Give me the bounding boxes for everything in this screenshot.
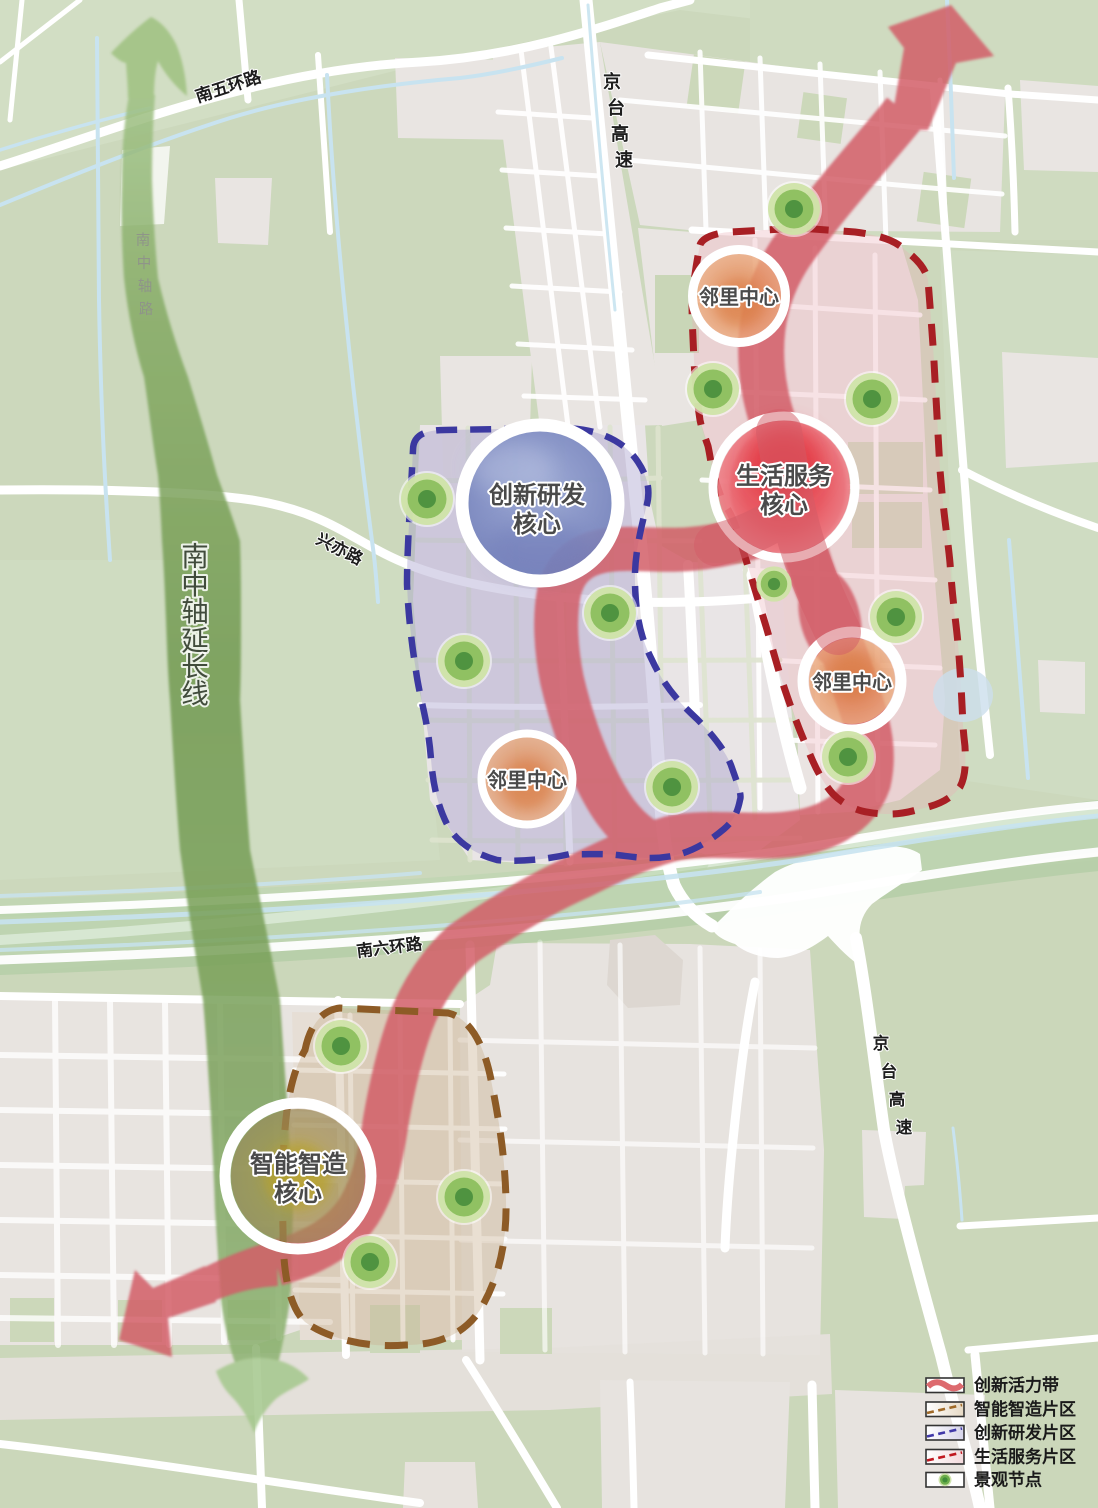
svg-text:核心: 核心 <box>274 1179 322 1207</box>
svg-text:南: 南 <box>181 541 209 572</box>
svg-text:台: 台 <box>881 1061 898 1081</box>
svg-text:智能智造: 智能智造 <box>250 1150 346 1178</box>
svg-text:京: 京 <box>873 1033 890 1053</box>
svg-text:线: 线 <box>181 678 209 709</box>
svg-text:中: 中 <box>137 255 152 272</box>
svg-text:速: 速 <box>615 149 633 170</box>
svg-text:核心: 核心 <box>513 510 561 538</box>
svg-text:邻里中心: 邻里中心 <box>812 670 892 694</box>
svg-text:智能智造片区: 智能智造片区 <box>974 1399 1076 1419</box>
svg-text:路: 路 <box>139 301 154 318</box>
svg-text:高: 高 <box>611 123 629 144</box>
svg-text:京: 京 <box>603 71 621 92</box>
svg-text:轴: 轴 <box>138 278 153 295</box>
svg-text:邻里中心: 邻里中心 <box>699 285 779 309</box>
svg-text:轴: 轴 <box>181 596 209 627</box>
svg-text:台: 台 <box>607 97 625 118</box>
svg-text:生活服务片区: 生活服务片区 <box>974 1447 1076 1467</box>
svg-text:高: 高 <box>889 1089 906 1109</box>
svg-text:景观节点: 景观节点 <box>974 1470 1042 1490</box>
svg-text:邻里中心: 邻里中心 <box>487 768 567 792</box>
svg-text:创新研发: 创新研发 <box>488 481 585 509</box>
svg-text:核心: 核心 <box>760 491 808 519</box>
svg-text:创新研发片区: 创新研发片区 <box>973 1423 1076 1443</box>
svg-text:生活服务: 生活服务 <box>736 462 833 490</box>
svg-text:南: 南 <box>136 232 151 249</box>
svg-text:速: 速 <box>896 1117 913 1137</box>
svg-text:创新活力带: 创新活力带 <box>973 1375 1059 1395</box>
